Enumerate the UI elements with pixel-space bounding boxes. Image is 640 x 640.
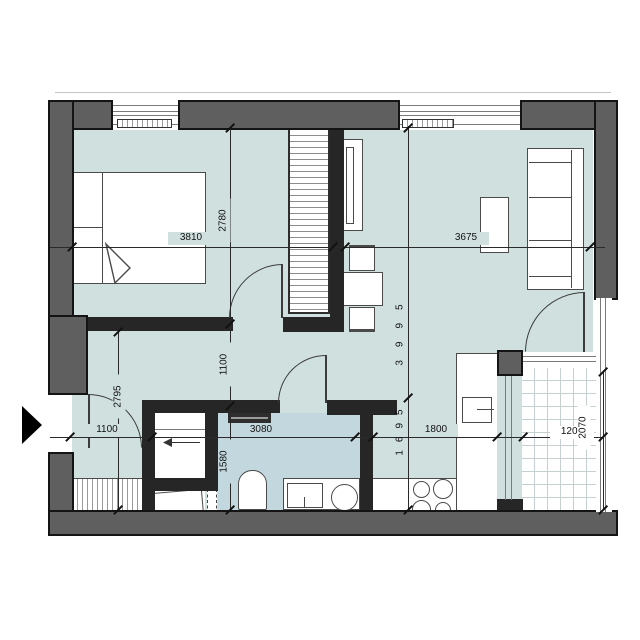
hob-burner-1 [413,481,430,498]
closet-arrow-line [170,442,200,443]
floor-plan: 3810 3675 2780 1100 1580 2795 3995 1695 … [0,0,640,640]
balcony-frame-line-1 [505,376,506,500]
balcony-frame-line-2 [511,376,512,500]
bath-sink-tap [304,497,305,508]
bed-pillow-line [73,227,102,228]
balcony-glazing-line-2 [605,298,606,512]
balcony-pillar [497,350,523,376]
kitchen-sink-tap [477,409,494,410]
dim-line-vertical-balcony [603,372,604,510]
floor-closet [155,413,205,478]
window-bedroom-glass-2 [113,115,178,116]
wall-left-lower [48,452,74,514]
dining-chair-bottom [349,307,375,332]
dim-line-vertical-hall [118,332,119,510]
sofa-cushion-line-2 [529,240,571,241]
dining-chair-top [349,245,375,271]
door-leaf-bedroom [281,264,283,318]
dim-bedroom-depth: 2780 [218,199,231,243]
towel-radiator-inner [231,417,268,419]
wall-left-pier [48,315,88,395]
wall-bottom [48,510,618,536]
wall-left-upper [48,100,74,317]
wall-right [594,100,618,300]
door-leaf-entry [88,394,90,448]
dim-kitchen-depth: 1695 [395,387,408,471]
washing-machine [331,484,358,511]
wall-closet-south [155,478,218,491]
dim-kitchen-width: 1800 [414,424,458,437]
radiator-bedroom [117,119,172,128]
hall-closet [72,478,145,512]
wall-bedroom-living [330,126,344,332]
tv-unit-inner [346,147,354,224]
dim-line-horizontal-main [50,247,605,248]
window-balcony-side [596,298,612,512]
wall-bath-west [142,400,155,512]
balcony-door-line-2 [523,361,596,362]
hob-burner-2 [433,479,453,499]
sofa [527,148,584,290]
balcony-glazing-line-1 [600,298,601,512]
sofa-backrest-line [571,150,572,288]
window-living-outer-line [400,105,520,106]
closet-shelf-line [155,429,205,430]
wardrobe-bedroom [288,128,330,314]
dim-balcony-depth: 2070 [578,406,591,450]
toilet [238,470,267,510]
door-leaf-balcony [583,292,585,352]
sofa-armrest-bottom [529,276,571,277]
dim-bedroom-width: 3810 [168,232,214,245]
sofa-armrest-top [529,162,571,163]
dim-living-width: 3675 [443,232,489,245]
balcony-door-line-1 [523,356,596,357]
facade-outline [55,92,611,93]
wall-bath-east [360,413,373,512]
wall-bath-north-left [142,400,280,413]
dim-hallway-depth: 2795 [113,375,126,419]
wall-closet-east [205,413,218,479]
door-leaf-bathroom [325,355,327,403]
entry-arrow-icon [22,406,42,444]
window-bedroom-outer-line [113,105,178,106]
dim-bathroom-width: 3080 [238,424,284,437]
dining-table [340,272,383,306]
sofa-cushion-line-1 [529,197,571,198]
kitchen-counter-tall [456,353,497,510]
window-living-glass-1 [400,111,520,112]
wall-top-middle [178,100,400,130]
dim-line-vertical-center [408,126,409,510]
dim-living-depth: 3995 [395,274,408,384]
balcony-door-band [523,352,596,368]
dim-bathroom-depth: 1580 [219,440,232,484]
dim-hall-passage: 1100 [219,343,232,387]
wall-bedroom-hall-left [85,317,233,331]
window-bedroom-glass-1 [113,111,178,112]
dim-entry-width: 1100 [85,424,129,437]
window-living-glass-2 [400,115,520,116]
